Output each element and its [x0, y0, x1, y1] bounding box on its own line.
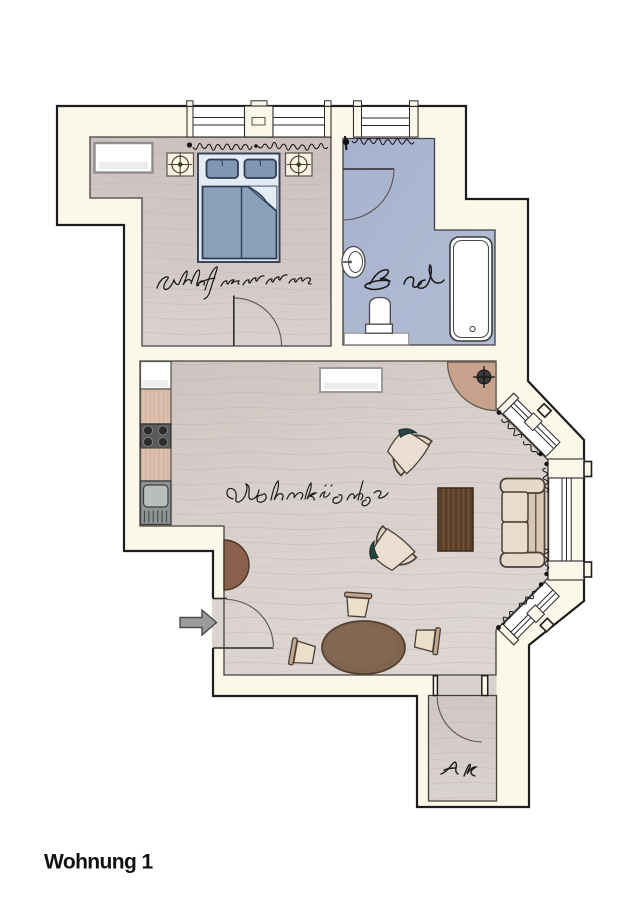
svg-text:Wohnung 1: Wohnung 1	[44, 851, 153, 874]
